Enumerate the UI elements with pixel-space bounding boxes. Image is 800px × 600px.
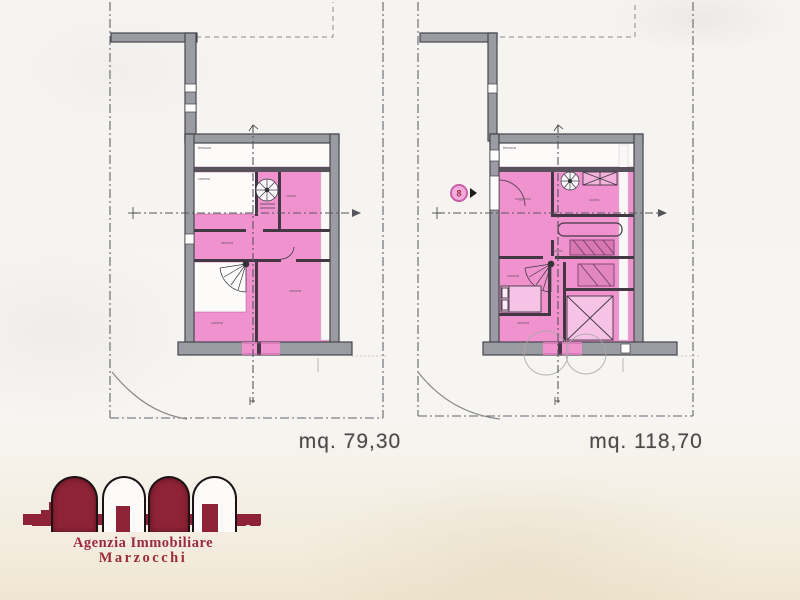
room-label-bedroom2: camera [517, 321, 529, 325]
logo-arch-2 [102, 476, 146, 532]
room-label-room1: camera [198, 177, 210, 181]
room-label-bedroom1: camera [507, 274, 519, 278]
right-floor-plan: 8 terrazza soggiorno cucina bagno camera… [405, 0, 705, 430]
spiral-staircase-icon [561, 172, 579, 190]
right-area-label: mq. 118,70 [584, 430, 708, 458]
bottom-door-openings [543, 342, 582, 355]
marker-arrow-icon [470, 188, 477, 198]
room-label-strip: terrazza [503, 146, 516, 150]
room-label-strip: terrazza [198, 146, 211, 150]
logo-arch-4 [192, 476, 237, 532]
margin-strip [321, 172, 330, 340]
unit-marker-number: 8 [456, 189, 461, 199]
room-label-hall: taverna [221, 241, 233, 245]
left-floor-plan: terrazza camera cucina taverna camera ca… [95, 0, 395, 430]
left-area-label: mq. 79,30 [294, 430, 406, 458]
logo-arch-3 [148, 476, 190, 532]
margin-strip [619, 145, 628, 340]
terrain-curve [112, 372, 187, 419]
agency-logo: Agenzia Immobiliare Marzocchi [18, 462, 268, 570]
terrace-strip [194, 142, 331, 167]
unit-marker-8: 8 [451, 185, 477, 201]
room-label-bath: bagno [553, 249, 563, 253]
bottom-door-openings [242, 342, 280, 355]
terrace-strip [499, 142, 634, 167]
scan-page: terrazza camera cucina taverna camera ca… [0, 0, 800, 600]
room-label-kitchen: cucina [589, 198, 599, 202]
room-label-lower-right: camera [289, 289, 301, 293]
logo-arch-1 [51, 476, 98, 532]
logo-name-line2: Marzocchi [18, 550, 268, 567]
terrain-curve [418, 372, 500, 419]
room-label-dining: cucina [286, 194, 296, 198]
room-label-living: soggiorno [515, 197, 531, 201]
room-label-lower-left: camera [211, 321, 223, 325]
